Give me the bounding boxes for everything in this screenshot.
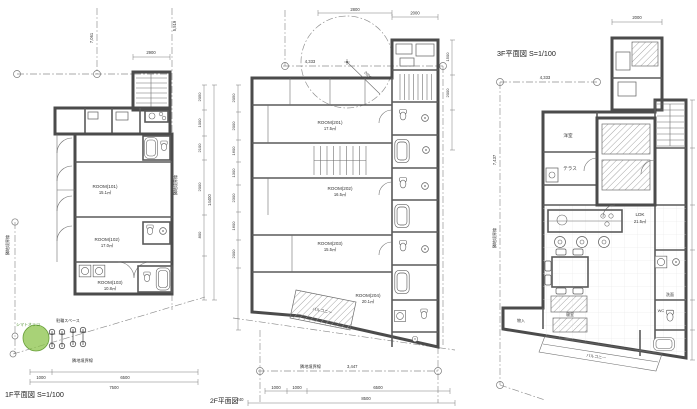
stool-icon (577, 237, 588, 248)
room-202-label: ROOM(202) (327, 186, 352, 191)
toilet-icon (666, 310, 673, 321)
dim-chain-2f-l5: 1600 (231, 221, 236, 231)
boundary-label-1f-bottom: 隣地境界線 (72, 357, 94, 364)
plan-3f: 3F平面図 S=1/100 4,333 7,437 隣地境界線 2000 (491, 15, 695, 400)
door-arc-icon (57, 138, 150, 278)
sink-icon (423, 147, 430, 154)
dim-chain-2f-l1: 2000 (231, 121, 236, 131)
room-storage-label: 物入 (517, 317, 525, 323)
plan-2f-top-dims: 2800 2000 (318, 7, 438, 20)
balcony-2f: バルコニー (290, 290, 356, 330)
washer-icon (394, 310, 405, 321)
room-western-label: 洋室 (563, 132, 573, 139)
room-101-area: 15.1㎡ (99, 189, 112, 195)
bicycle-icon (80, 327, 86, 346)
dim-2f-left-h: 4,333 (305, 59, 316, 64)
outdoor-sink-icon (546, 168, 558, 182)
room-103-area: 10.8㎡ (104, 285, 117, 291)
dim-3f-span: 4,333 (540, 75, 551, 80)
tree-label: シマトネリコ (16, 321, 40, 327)
room-102-label: ROOM(102) (94, 237, 119, 242)
washer-icon (79, 265, 91, 277)
dim-2f-btotal: 8500 (361, 396, 371, 401)
stairs-icon (136, 74, 167, 108)
toilet-icon (147, 225, 153, 235)
dim-chain-2f-r1: 2000 (445, 88, 450, 98)
toilet-icon (400, 241, 407, 251)
dim-chain-1f-2: 2100 (197, 143, 202, 153)
stool-icon (599, 237, 610, 248)
floor-plan-sheet: 7,061 5,519 隣地境界線 隣地境界線 2900 (0, 0, 697, 409)
plan-2f-building: ROOM(201) 17.5㎡ ROOM(202) 16.5㎡ ROOM(203… (252, 40, 438, 347)
dim-chain-2f-r0: 1500 (445, 52, 450, 62)
toilet-icon (161, 141, 167, 151)
sink-icon (673, 259, 680, 266)
room-washroom-label: 洗面 (666, 291, 674, 297)
dim-2f-top1: 2800 (350, 7, 360, 12)
room-204-label: ROOM(204) (355, 293, 380, 298)
bicycle-icon (70, 327, 76, 346)
boundary-label-2f: 隣地境界線 (300, 363, 322, 370)
room-bedroom-label: 寝室 (566, 311, 574, 317)
dim-chain-2f-l2: 1600 (231, 146, 236, 156)
stairs-icon (655, 100, 686, 148)
room-terrace-label: テラス (563, 166, 577, 172)
dim-chain-1f-1: 1000 (197, 118, 202, 128)
sink-icon (422, 183, 429, 190)
bicycle-area-label: 駐輪スペース (56, 317, 80, 323)
sink-icon (160, 228, 167, 235)
dim-1f-b1: 1000 (36, 375, 46, 380)
sink-icon (422, 246, 429, 253)
dim-chain-2f-l4: 2300 (231, 193, 236, 203)
kitchen-counter-icon (145, 111, 168, 122)
dim-2f-b1: 1000 (271, 385, 281, 390)
room-203-label: ROOM(203) (317, 241, 342, 246)
dim-chain-1f-total: 14400 (207, 194, 212, 206)
bathtub-icon (395, 204, 409, 227)
room-201-area: 17.5㎡ (324, 125, 337, 131)
sink-icon (422, 115, 429, 122)
toilet-icon (400, 178, 407, 188)
plan-1f-grid-boundary: 7,061 5,519 隣地境界線 隣地境界線 (4, 8, 205, 357)
boundary-label-1f-left: 隣地境界線 (4, 235, 10, 255)
room-202-area: 16.5㎡ (334, 191, 347, 197)
room-102-area: 17.0㎡ (101, 242, 114, 248)
washer-icon (655, 256, 667, 268)
plan-2f-title: 2F平面図 (210, 397, 239, 405)
toilet-icon (144, 272, 150, 282)
room-ldk-label: LDK (636, 212, 646, 217)
dim-3f-left-vertical: 7,437 (492, 154, 497, 165)
dim-chain-1f-4: 800 (197, 231, 202, 238)
washer-icon (93, 265, 105, 277)
dim-chain-1f-0: 2050 (197, 92, 202, 102)
plan-1f-site: シマトネリコ 駐輪スペース 隣地境界線 1000 6500 7500 1F平面図… (5, 317, 198, 399)
bathtub-icon (156, 268, 170, 290)
plan-1f-title: 1F平面図 S=1/100 (5, 390, 64, 399)
bicycle-icon (49, 329, 55, 348)
room-103-label: ROOM(103) (97, 280, 122, 285)
boundary-length-2f: 3,447 (347, 364, 358, 369)
sink-icon (412, 336, 417, 341)
toilet-icon (400, 110, 407, 120)
bathtub-icon (145, 138, 158, 159)
dim-3f-top: 2000 (632, 15, 642, 20)
dim-chain-2f-l3: 1300 (231, 168, 236, 178)
tree-icon (23, 325, 49, 351)
dim-chain-2f-l6: 2000 (231, 249, 236, 259)
room-wc-label: WC (658, 308, 665, 313)
plan-2f-bottom: 隣地境界線 3,447 1000 1000 6500 240 8500 2F平面… (210, 363, 455, 406)
plan-1f-dim-chain: 2050 1000 2100 2000 800 14400 (197, 85, 217, 300)
room-ldk-area: 21.5㎡ (634, 218, 647, 224)
door-arc-icon (379, 110, 392, 255)
dim-chain-1f-3: 2000 (197, 182, 202, 192)
toilet-icon (421, 309, 427, 319)
bathtub-icon (395, 139, 409, 162)
stool-icon (555, 237, 566, 248)
boundary-label-3f-left: 隣地境界線 (491, 228, 497, 248)
dim-chain-2f-l0: 2050 (231, 93, 236, 103)
dim-2f-b2: 1000 (292, 385, 302, 390)
room-203-area: 15.5㎡ (324, 246, 337, 252)
plan-1f: 7,061 5,519 隣地境界線 隣地境界線 2900 (4, 8, 217, 399)
dim-1f-right-vertical: 5,519 (172, 20, 177, 31)
plan-2f: 4,333 2000 2800 2000 (210, 7, 455, 406)
dim-1f-left-vertical: 7,061 (89, 32, 94, 43)
dim-1f-top: 2900 (146, 50, 156, 55)
bathtub-icon (654, 338, 675, 351)
dim-1f-btotal: 7500 (109, 385, 119, 390)
plan-3f-building: 洋室 テラス LDK 21.5㎡ 寝室 洗面 WC 物入 バルコニー (503, 38, 686, 371)
dim-2f-top2: 2000 (410, 11, 420, 16)
plan-1f-building: 2900 (55, 50, 172, 294)
bathtub-icon (395, 270, 409, 293)
room-201-label: ROOM(201) (317, 120, 342, 125)
plan-3f-title: 3F平面図 S=1/100 (497, 49, 556, 58)
room-204-area: 20.1㎡ (362, 298, 375, 304)
dim-1f-b2: 6500 (120, 375, 130, 380)
room-101-label: ROOM(101) (92, 184, 117, 189)
floor-plan-drawing: 7,061 5,519 隣地境界線 隣地境界線 2900 (0, 0, 697, 409)
dim-2f-b3: 6500 (373, 385, 383, 390)
